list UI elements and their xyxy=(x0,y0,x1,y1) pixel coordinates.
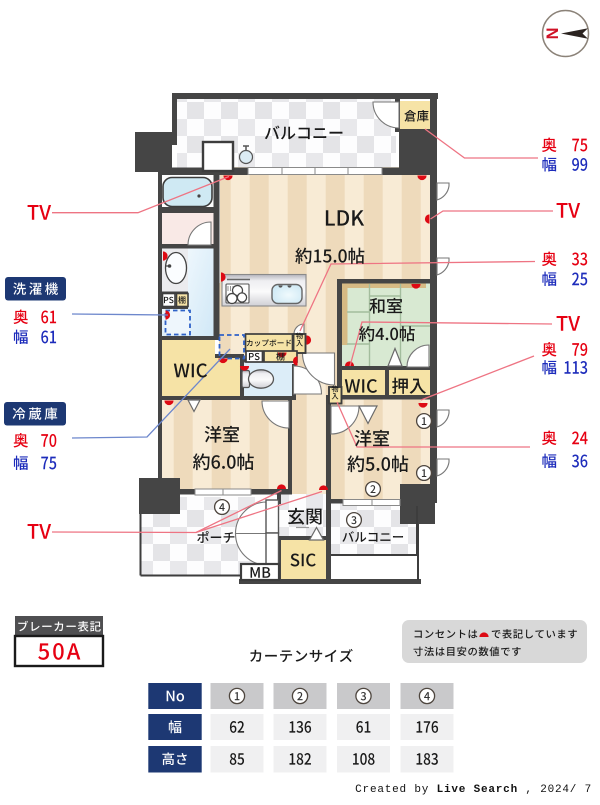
svg-text:Created by Live Search , 2024/: Created by Live Search , 2024/ 7 xyxy=(355,784,592,796)
svg-text:N: N xyxy=(543,28,561,40)
